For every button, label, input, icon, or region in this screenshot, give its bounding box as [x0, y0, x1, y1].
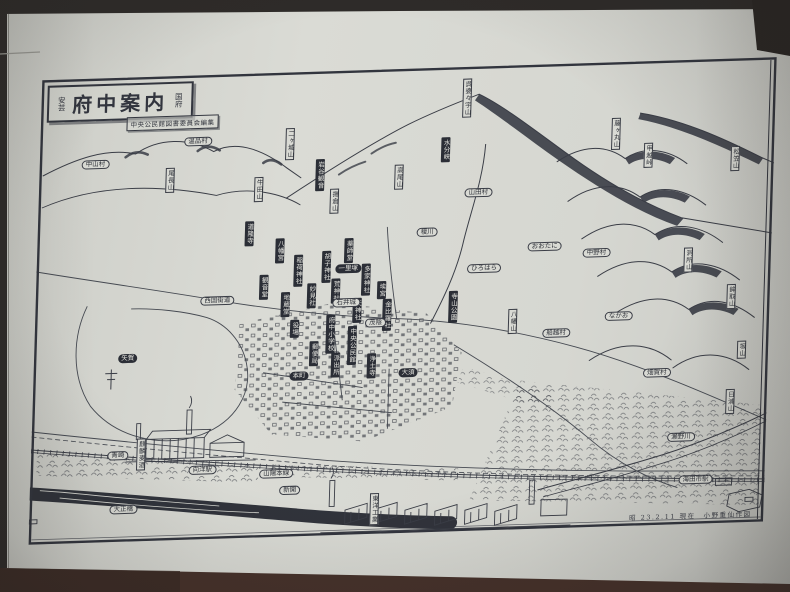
map-title: 府中案内 [72, 86, 169, 118]
map-label: 本町 [289, 371, 308, 380]
map-label: 山田村 [464, 188, 492, 198]
map-label: 妙見社 [307, 283, 317, 308]
map-label: 岩谷観音 [315, 159, 325, 191]
map-area: 呉婆々宇山水分峡高尾山揚倉山二ヶ城山尾長山牛田山藤ヶ丸山甲越峠松笠山洞所山鉾取山… [28, 57, 777, 545]
map-label: 温品村 [184, 137, 212, 147]
map-subtitle: 中央公民館図書委員会編集 [126, 114, 218, 131]
map-label: 茂陰 [365, 318, 386, 327]
map-label: 二ヶ城山 [285, 128, 295, 160]
map-label: 新開 [279, 485, 300, 494]
map-label: 埃宮 [377, 281, 386, 299]
map-label: 海田市駅 [678, 474, 712, 484]
map-label: 大須 [398, 368, 417, 377]
map-label: 派出所 [331, 352, 341, 377]
map-label: 洞所山 [683, 247, 693, 272]
map-label: 榎川 [417, 227, 438, 236]
map-label: 道隆寺 [244, 221, 254, 246]
photo-of-map: { "map": { "region_label_left": "安芸", "t… [0, 0, 790, 592]
map-label: 牛田山 [254, 177, 264, 202]
map-label: 東洋工業 [369, 493, 379, 525]
map-label: 青崎 [107, 451, 128, 460]
map-label: 石井城 [332, 298, 360, 308]
map-label: 甲越峠 [643, 143, 653, 168]
map-label: 畑賀村 [643, 368, 671, 378]
map-label: 坂山 [737, 341, 746, 359]
map-label: 一里塚 [335, 264, 361, 274]
map-label: 麒麟麦酒 [136, 438, 146, 470]
map-label: 矢賀 [118, 354, 137, 363]
title-region-left: 安芸 [55, 95, 69, 112]
title-region-right: 国府 [172, 91, 186, 108]
map-label: 鉾取山 [726, 284, 736, 309]
map-label: 瀬野川 [667, 432, 695, 442]
map-label: ひろはら [467, 263, 501, 273]
map-label: 中央公民館 [347, 326, 357, 365]
map-label: 八幡宮 [275, 238, 285, 263]
map-label: 中野村 [583, 248, 611, 258]
map-label: 観音堂 [259, 275, 269, 300]
map-label: 胡子神社 [321, 251, 331, 283]
map-label: おおたに [527, 241, 561, 251]
map-label: 府中小学校 [325, 315, 335, 354]
map-label: 地蔵堂 [280, 292, 290, 317]
map-label: 西国街道 [200, 296, 234, 306]
map-label: 藤ヶ丸山 [611, 118, 621, 150]
map-label: 大正橋 [109, 505, 137, 515]
map-label: 薬師堂 [344, 238, 354, 263]
map-label: 水分峡 [441, 137, 451, 162]
map-label: なかお [605, 311, 633, 321]
map-label: 揚倉山 [329, 189, 339, 214]
map-label: 郵便局 [309, 341, 319, 366]
map-label: 稲荷神社 [293, 255, 303, 287]
map-label: 中山村 [82, 160, 110, 170]
map-label: 八幡山 [508, 309, 518, 334]
map-label: 尾長山 [165, 168, 175, 193]
map-label: 役場 [290, 320, 299, 338]
map-label: 呉婆々宇山 [462, 78, 472, 117]
map-label: 高尾山 [394, 165, 404, 190]
map-label: 日浦山 [725, 389, 735, 414]
map-label: 向洋駅 [188, 465, 216, 475]
map-label: 多家神社 [361, 263, 371, 295]
map-label: 松笠山 [730, 146, 740, 171]
map-label: 船越村 [542, 328, 570, 338]
map-label: 寺山公園 [448, 291, 458, 323]
map-label: 浄土寺 [366, 353, 376, 378]
map-label: 山陽本線 [259, 469, 293, 479]
